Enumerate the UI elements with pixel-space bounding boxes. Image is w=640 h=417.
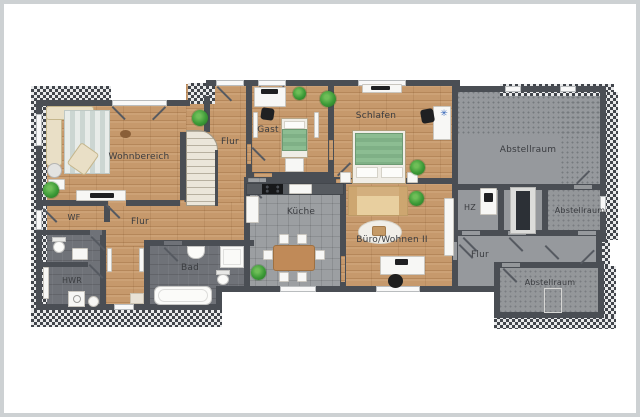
- desk-chair: [388, 274, 403, 288]
- sofa: [348, 186, 408, 216]
- toilet: [52, 237, 66, 253]
- blanket: [355, 133, 403, 165]
- room-label-abstellraum-unten: Abstellraum: [525, 278, 575, 288]
- roof-hatch-right: [604, 92, 618, 240]
- roof-hatch-right-lower: [602, 266, 616, 318]
- wall: [494, 262, 500, 318]
- shower-tray: [223, 249, 241, 265]
- door-opening: [329, 140, 333, 160]
- room-label-bad: Bad: [181, 263, 199, 273]
- wall: [452, 286, 500, 292]
- floor-plan-image: ✳: [0, 0, 640, 417]
- door-opening: [164, 241, 182, 245]
- pillow: [356, 167, 378, 178]
- wall: [100, 230, 106, 308]
- bathtub: [154, 286, 212, 305]
- door-opening: [462, 231, 480, 235]
- tv-icon: [371, 86, 390, 90]
- kitchen-sink: [289, 184, 312, 194]
- wall: [600, 86, 606, 242]
- side-table: [47, 163, 62, 178]
- door-opening: [502, 263, 520, 267]
- toilet-bowl: [217, 274, 229, 285]
- stove-icon: [262, 184, 283, 194]
- blanket: [282, 129, 307, 151]
- door-opening: [341, 256, 345, 282]
- desk-chair: [420, 108, 435, 124]
- tv-icon: [90, 193, 114, 198]
- room-label-gast: Gast: [257, 125, 279, 135]
- roof-hatch-topmiddle: [188, 83, 215, 104]
- room-label-kueche: Küche: [287, 207, 315, 217]
- room-label-wf: WF: [68, 213, 81, 223]
- roof-hatch-topleft: [31, 86, 111, 101]
- single-bed: [281, 118, 308, 158]
- monitor-icon: [261, 89, 278, 94]
- plant-icon: [293, 87, 306, 100]
- tub-basin: [158, 289, 208, 302]
- chair: [315, 250, 325, 260]
- wall: [216, 286, 460, 292]
- storage-box: [544, 288, 562, 313]
- toilet: [216, 270, 230, 285]
- room-label-hwr: HWR: [62, 276, 82, 286]
- room-label-abstellraum-oben: Abstellraum: [500, 145, 557, 155]
- window: [258, 80, 286, 86]
- wall: [456, 86, 606, 92]
- plant-icon: [410, 160, 425, 175]
- chair: [297, 234, 307, 244]
- door-opening: [248, 178, 266, 182]
- sofa-armrest: [399, 187, 407, 215]
- window: [280, 286, 316, 292]
- window: [560, 86, 576, 92]
- radiator: [314, 112, 319, 138]
- bathroom-sink: [72, 248, 88, 260]
- wall: [598, 262, 604, 318]
- dining-table: [273, 245, 315, 271]
- double-bed: [352, 130, 406, 184]
- window: [112, 100, 167, 106]
- ceiling-lamp-icon: ✳: [438, 108, 450, 120]
- plant-icon: [409, 191, 424, 206]
- chair: [279, 234, 289, 244]
- room-label-flur-mitte: Flur: [221, 137, 239, 147]
- terrace-door: [114, 304, 134, 310]
- cat: [120, 130, 131, 138]
- roof-hatch-bottomleft: [31, 310, 222, 327]
- sideboard: [444, 198, 454, 256]
- room-label-wohnbereich: Wohnbereich: [109, 152, 170, 162]
- wall: [144, 240, 150, 308]
- room-label-abstellraum-mitte: Abstellraum: [555, 206, 605, 216]
- radiator: [139, 248, 144, 272]
- sofa-armrest: [349, 187, 357, 215]
- door-opening: [247, 144, 251, 164]
- plant-icon: [251, 265, 266, 280]
- room-label-schlafen: Schlafen: [356, 111, 396, 121]
- laundry-basket: [88, 296, 99, 307]
- window: [505, 86, 521, 92]
- control-box: [484, 193, 493, 202]
- plant-icon: [43, 182, 59, 198]
- door-opening: [578, 231, 596, 235]
- room-label-flur-links: Flur: [131, 217, 149, 227]
- dresser: [285, 158, 304, 172]
- entry-door: [36, 210, 42, 230]
- toilet-bowl: [53, 241, 65, 253]
- fridge: [246, 196, 259, 223]
- room-label-hz: HZ: [464, 203, 476, 213]
- window: [216, 80, 244, 86]
- radiator: [107, 248, 112, 272]
- washer-door: [73, 295, 81, 303]
- plant-icon: [192, 110, 208, 126]
- shelf: [43, 267, 49, 299]
- staircase: [186, 130, 218, 206]
- nightstand: [340, 172, 351, 183]
- room-label-buero-wohnen: Büro/Wohnen II: [356, 235, 427, 245]
- shower: [220, 246, 244, 268]
- washing-machine: [68, 291, 85, 307]
- room-label-flur-rechts: Flur: [471, 250, 489, 260]
- plant-icon: [320, 91, 336, 107]
- chair: [297, 272, 307, 282]
- door-opening: [254, 173, 272, 177]
- door-mat: [130, 293, 144, 304]
- stair-railing: [215, 150, 218, 206]
- chair: [279, 272, 289, 282]
- monitor-icon: [395, 259, 408, 265]
- door-opening: [574, 185, 592, 189]
- boiler-tank: [510, 187, 536, 234]
- tank-body: [516, 191, 530, 230]
- door-opening: [90, 230, 102, 235]
- chair: [263, 250, 273, 260]
- pillow: [284, 121, 305, 129]
- window: [36, 114, 42, 146]
- pillow: [381, 167, 403, 178]
- desk-chair: [260, 107, 275, 121]
